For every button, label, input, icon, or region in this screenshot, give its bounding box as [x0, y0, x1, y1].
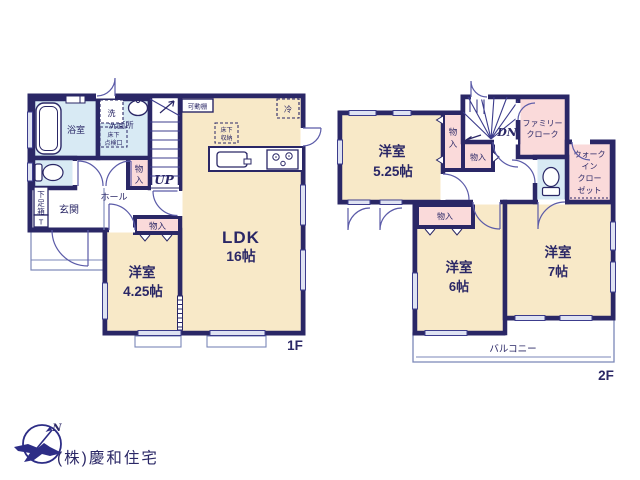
stairs-up-label: UP	[154, 173, 174, 187]
floor1-label: 1F	[287, 338, 303, 353]
room-ldk-name: LDK	[222, 228, 260, 247]
stairs-2f: DN	[463, 97, 518, 143]
partition-rungs	[178, 300, 183, 327]
room-6-size: 6帖	[449, 279, 469, 294]
casement-window-arcs	[348, 208, 402, 230]
room-425-name: 洋室	[129, 264, 156, 280]
toilet-tank-icon	[35, 164, 42, 181]
bath-counter-end-icon	[80, 96, 85, 103]
room-6-name: 洋室	[446, 259, 473, 275]
stairs-1f: UP	[150, 96, 180, 191]
room-425-size: 4.25帖	[123, 283, 163, 299]
toilet-bowl-icon	[543, 168, 559, 187]
window-sill	[207, 336, 266, 347]
window-sill	[135, 336, 181, 347]
closet-a-line1: 物	[135, 164, 144, 174]
floor2-plan: バルコニー 洋室 6帖 洋室 7帖 洋室 5.25帖 物 入 物入	[338, 81, 616, 383]
room-washroom: 洗面所 洗 床下 点検口	[98, 99, 150, 158]
entrance-label: 玄関	[59, 203, 79, 216]
room-425-area	[105, 230, 180, 333]
closet-2f-b-label: 物入	[470, 152, 486, 162]
floor1-plan: LDK 16帖 洋室 4.25帖 浴室 洗面所 洗 床下 点検口	[28, 78, 322, 353]
room-bath: 浴室	[33, 96, 98, 158]
washer-label: 洗	[108, 108, 116, 118]
inspection-line1: 床下	[107, 131, 119, 139]
room-7-name: 洋室	[545, 244, 573, 260]
stairs-dn-label: DN	[496, 126, 518, 139]
partition-window	[178, 296, 183, 330]
balcony-label: バルコニー	[489, 344, 536, 355]
floor-storage-line2: 収納	[220, 134, 232, 142]
compass-north-label: N	[51, 423, 62, 434]
room-ldk: LDK 16帖	[180, 96, 303, 333]
toilet-tank-icon	[543, 188, 560, 196]
toilet-bowl-icon	[43, 165, 63, 181]
room-ldk-area	[180, 96, 303, 333]
room-525-size: 5.25帖	[373, 163, 413, 179]
wic-line4: ゼット	[578, 185, 602, 195]
movable-shelf-label: 可動棚	[188, 102, 208, 111]
room-525: 洋室 5.25帖	[340, 113, 443, 202]
room-toilet-1f	[33, 158, 75, 188]
floorplan-page: LDK 16帖 洋室 4.25帖 浴室 洗面所 洗 床下 点検口	[0, 0, 640, 480]
burner-dot	[275, 156, 277, 158]
floor-storage-line1: 床下	[220, 126, 232, 134]
inspection-line2: 点検口	[104, 139, 122, 147]
shoe-box-line3: 箱	[37, 206, 45, 216]
family-closet-line1: ファミリー	[523, 119, 563, 128]
burner-dot	[288, 155, 290, 157]
family-closet-line2: クローク	[527, 130, 559, 139]
floor2-label: 2F	[598, 368, 614, 383]
room-7-area	[505, 202, 613, 318]
company-name: (株)慶和住宅	[57, 449, 159, 467]
hall-label: ホール	[100, 192, 127, 202]
floorplan-drawing: LDK 16帖 洋室 4.25帖 浴室 洗面所 洗 床下 点検口	[0, 0, 640, 480]
closet-a-line2: 入	[135, 175, 144, 185]
room-525-name: 洋室	[379, 143, 406, 159]
closet-2f-c-label: 物入	[437, 211, 453, 221]
room-425: 洋室 4.25帖	[105, 230, 180, 333]
entrance-porch	[31, 230, 104, 270]
shoe-box-t-label: T	[39, 218, 44, 227]
room-ldk-size: 16帖	[226, 248, 256, 264]
wic-line3: クロー	[578, 174, 602, 183]
wic-line1: ウォーク	[574, 150, 606, 159]
fridge-label: 冷	[284, 104, 292, 114]
room-7-size: 7帖	[548, 264, 568, 279]
wic-line2: イン	[582, 162, 598, 171]
room-7: 洋室 7帖	[505, 202, 613, 318]
room-bath-label: 浴室	[67, 124, 85, 135]
closet-2f-a-line2: 入	[449, 139, 458, 149]
closet-b-label: 物入	[149, 221, 167, 231]
footer: N (株)慶和住宅	[14, 423, 159, 467]
room-toilet-2f	[535, 157, 567, 202]
compass-icon: N	[14, 423, 62, 463]
partition-frame	[178, 296, 183, 330]
closet-2f-a-line1: 物	[449, 127, 458, 137]
